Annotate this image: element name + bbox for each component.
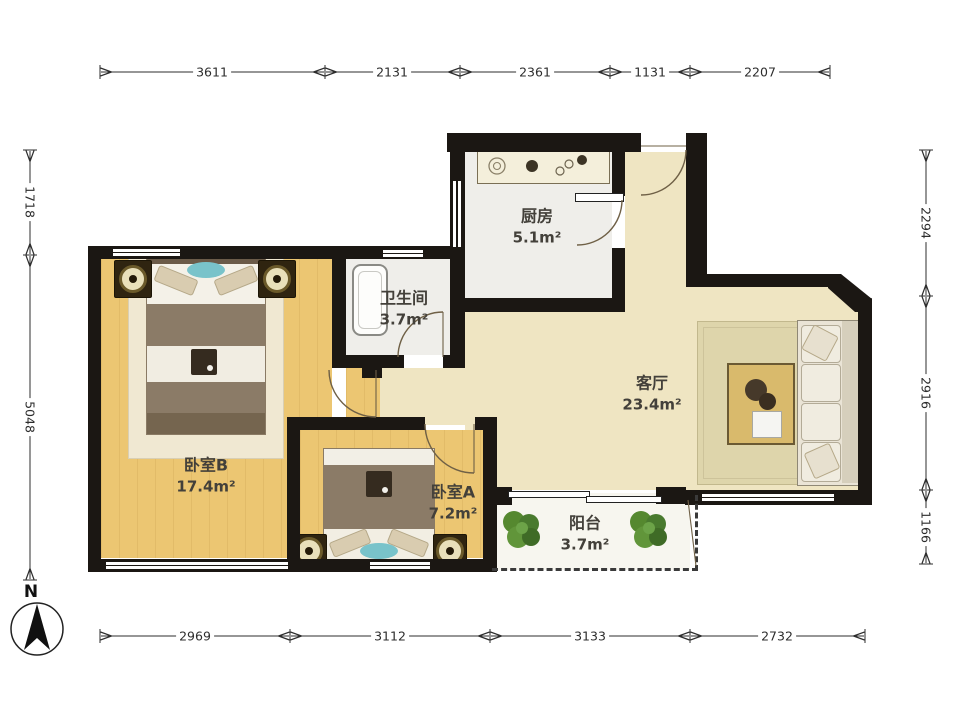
bedroom-b-label: 卧室B 17.4m² <box>176 454 235 499</box>
dim-bottom-3: 3133 <box>571 629 609 644</box>
kitchen-area: 5.1m² <box>513 228 562 250</box>
entry-door-arc <box>641 150 686 195</box>
kitchen-name: 厨房 <box>513 205 562 228</box>
bedroom-a-name: 卧室A <box>429 481 478 504</box>
living-room-name: 客厅 <box>622 372 681 395</box>
dim-top-2: 2131 <box>373 65 411 80</box>
dim-top-3: 2361 <box>516 65 554 80</box>
kitchen-door-arc <box>577 200 622 245</box>
floor-plan: 厨房 5.1m² 卫生间 3.7m² 客厅 23.4m² 卧室B 17.4m² … <box>0 0 960 720</box>
north-compass <box>11 603 63 655</box>
dim-right-2: 2916 <box>919 374 934 412</box>
balcony-plant-left <box>503 511 540 548</box>
living-room-area: 23.4m² <box>622 395 681 417</box>
bedroom-a-area: 7.2m² <box>429 504 478 526</box>
living-room-label: 客厅 23.4m² <box>622 372 681 417</box>
bedroom-b-name: 卧室B <box>176 454 235 477</box>
dim-right-1: 2294 <box>919 204 934 242</box>
balcony-plant-right <box>630 511 667 548</box>
dim-left-2: 5048 <box>23 398 38 436</box>
balcony-area: 3.7m² <box>561 535 610 557</box>
bathroom-area: 3.7m² <box>380 310 429 332</box>
bedroom-a-door-arc <box>425 424 474 473</box>
balcony-name: 阳台 <box>561 512 610 535</box>
north-label: N <box>24 582 38 602</box>
plan-overlay <box>0 0 960 720</box>
dim-bottom-4: 2732 <box>758 629 796 644</box>
dim-right-3: 1166 <box>919 508 934 546</box>
bedroom-a-label: 卧室A 7.2m² <box>429 481 478 526</box>
dim-top-5: 2207 <box>741 65 779 80</box>
dim-top-4: 1131 <box>631 65 669 80</box>
dim-top-1: 3611 <box>193 65 231 80</box>
bedroom-b-area: 17.4m² <box>176 477 235 499</box>
balcony-label: 阳台 3.7m² <box>561 512 610 557</box>
dim-bottom-1: 2969 <box>176 629 214 644</box>
balcony-corner-line <box>688 500 696 566</box>
bedroom-b-door-arc <box>329 370 376 417</box>
kitchen-appliance-icons <box>489 155 587 175</box>
bathroom-label: 卫生间 3.7m² <box>380 287 429 332</box>
kitchen-label: 厨房 5.1m² <box>513 205 562 250</box>
bathroom-name: 卫生间 <box>380 287 429 310</box>
dim-bottom-2: 3112 <box>371 629 409 644</box>
dim-left-1: 1718 <box>23 183 38 221</box>
